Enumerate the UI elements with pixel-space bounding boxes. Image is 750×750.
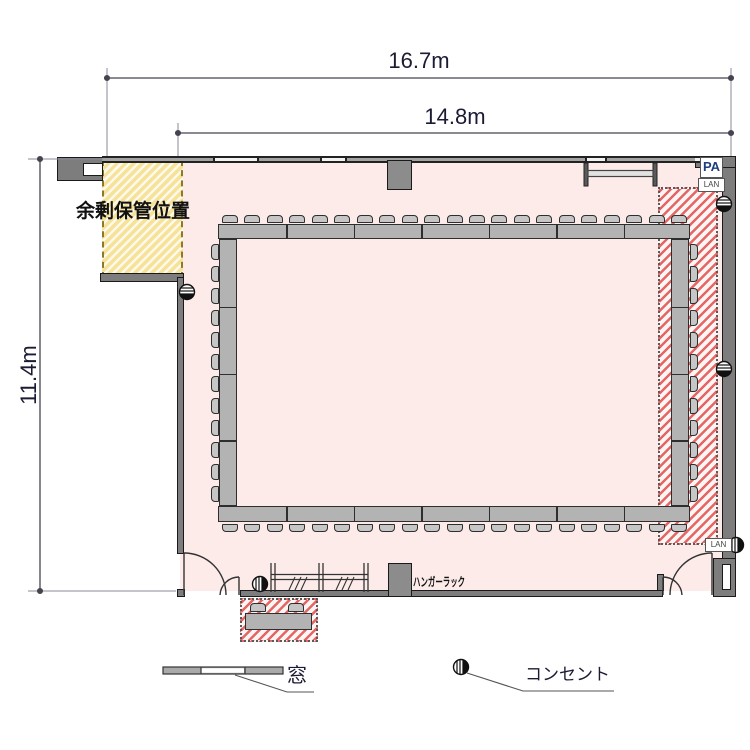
lan-top-label: LAN	[704, 181, 720, 190]
door-bottom-right	[663, 553, 712, 595]
hanger-rack-label: ハンガーラック	[413, 576, 465, 589]
linework	[0, 0, 750, 750]
outlet-icon	[180, 285, 195, 300]
lan-bottom-label: LAN	[711, 541, 727, 550]
whiteboard	[584, 163, 657, 186]
lan-box-top: LAN	[698, 178, 725, 192]
dimension-label-height: 11.4m	[17, 340, 41, 410]
pa-box: PA	[700, 157, 723, 178]
outlet-icon	[717, 197, 732, 212]
hanger-rack	[271, 563, 368, 592]
pa-label: PA	[703, 160, 720, 174]
dimension-label-inner: 14.8m	[420, 105, 490, 129]
storage-area-label: 余剰保管位置	[76, 202, 190, 223]
lan-box-bottom: LAN	[705, 538, 732, 552]
outlet-icons	[180, 197, 744, 675]
door-bottom-left	[184, 553, 239, 595]
outlet-icon	[253, 577, 268, 592]
dimension-label-outer: 16.7m	[384, 49, 454, 73]
outlet-icon	[717, 362, 732, 377]
dimension-outer-width	[105, 68, 734, 156]
legend-outlet-label: コンセント	[525, 666, 610, 685]
outlet-icon	[454, 660, 469, 675]
legend-window-label: 窓	[287, 665, 307, 687]
floor-plan: PA LAN LAN	[0, 0, 750, 750]
